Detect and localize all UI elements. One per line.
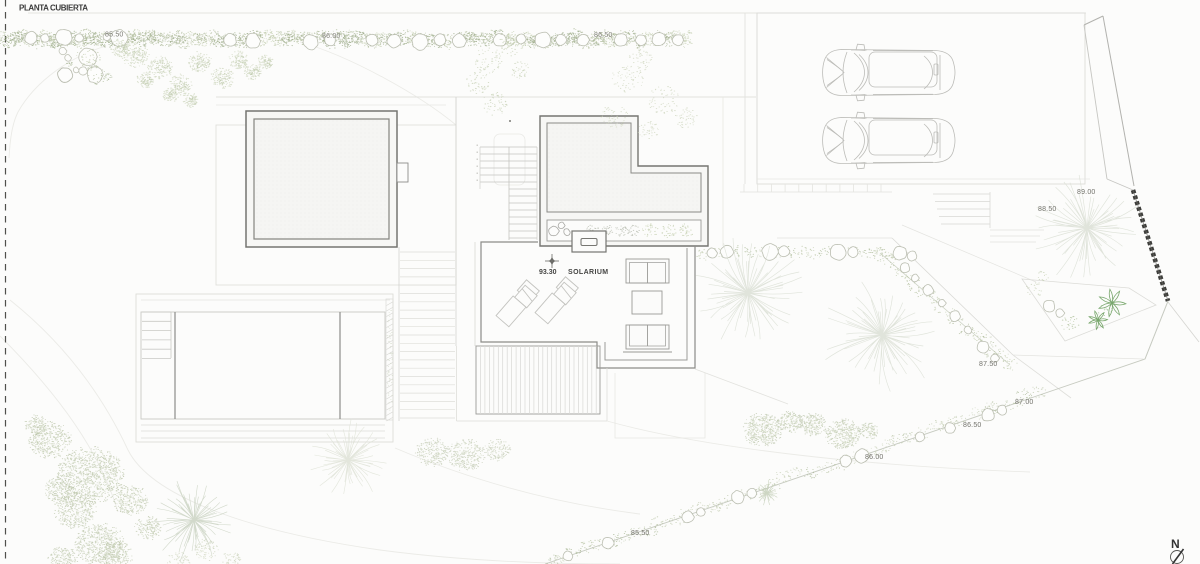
svg-text:87.00: 87.00: [1015, 399, 1034, 406]
svg-text:86.50: 86.50: [963, 422, 982, 429]
svg-text:PLANTA CUBIERTA: PLANTA CUBIERTA: [19, 4, 88, 13]
svg-text:86.50: 86.50: [594, 32, 613, 39]
svg-text:87.50: 87.50: [979, 361, 998, 368]
svg-text:N: N: [1171, 537, 1180, 551]
svg-text:86.00: 86.00: [322, 33, 341, 40]
svg-text:85.50: 85.50: [105, 32, 124, 39]
svg-text:85.50: 85.50: [631, 530, 650, 537]
svg-text:86.00: 86.00: [865, 454, 884, 461]
svg-text:89.00: 89.00: [1077, 189, 1096, 196]
svg-text:SOLARIUM: SOLARIUM: [568, 269, 609, 276]
svg-text:88.50: 88.50: [1038, 206, 1057, 213]
svg-text:93.30: 93.30: [539, 269, 557, 276]
